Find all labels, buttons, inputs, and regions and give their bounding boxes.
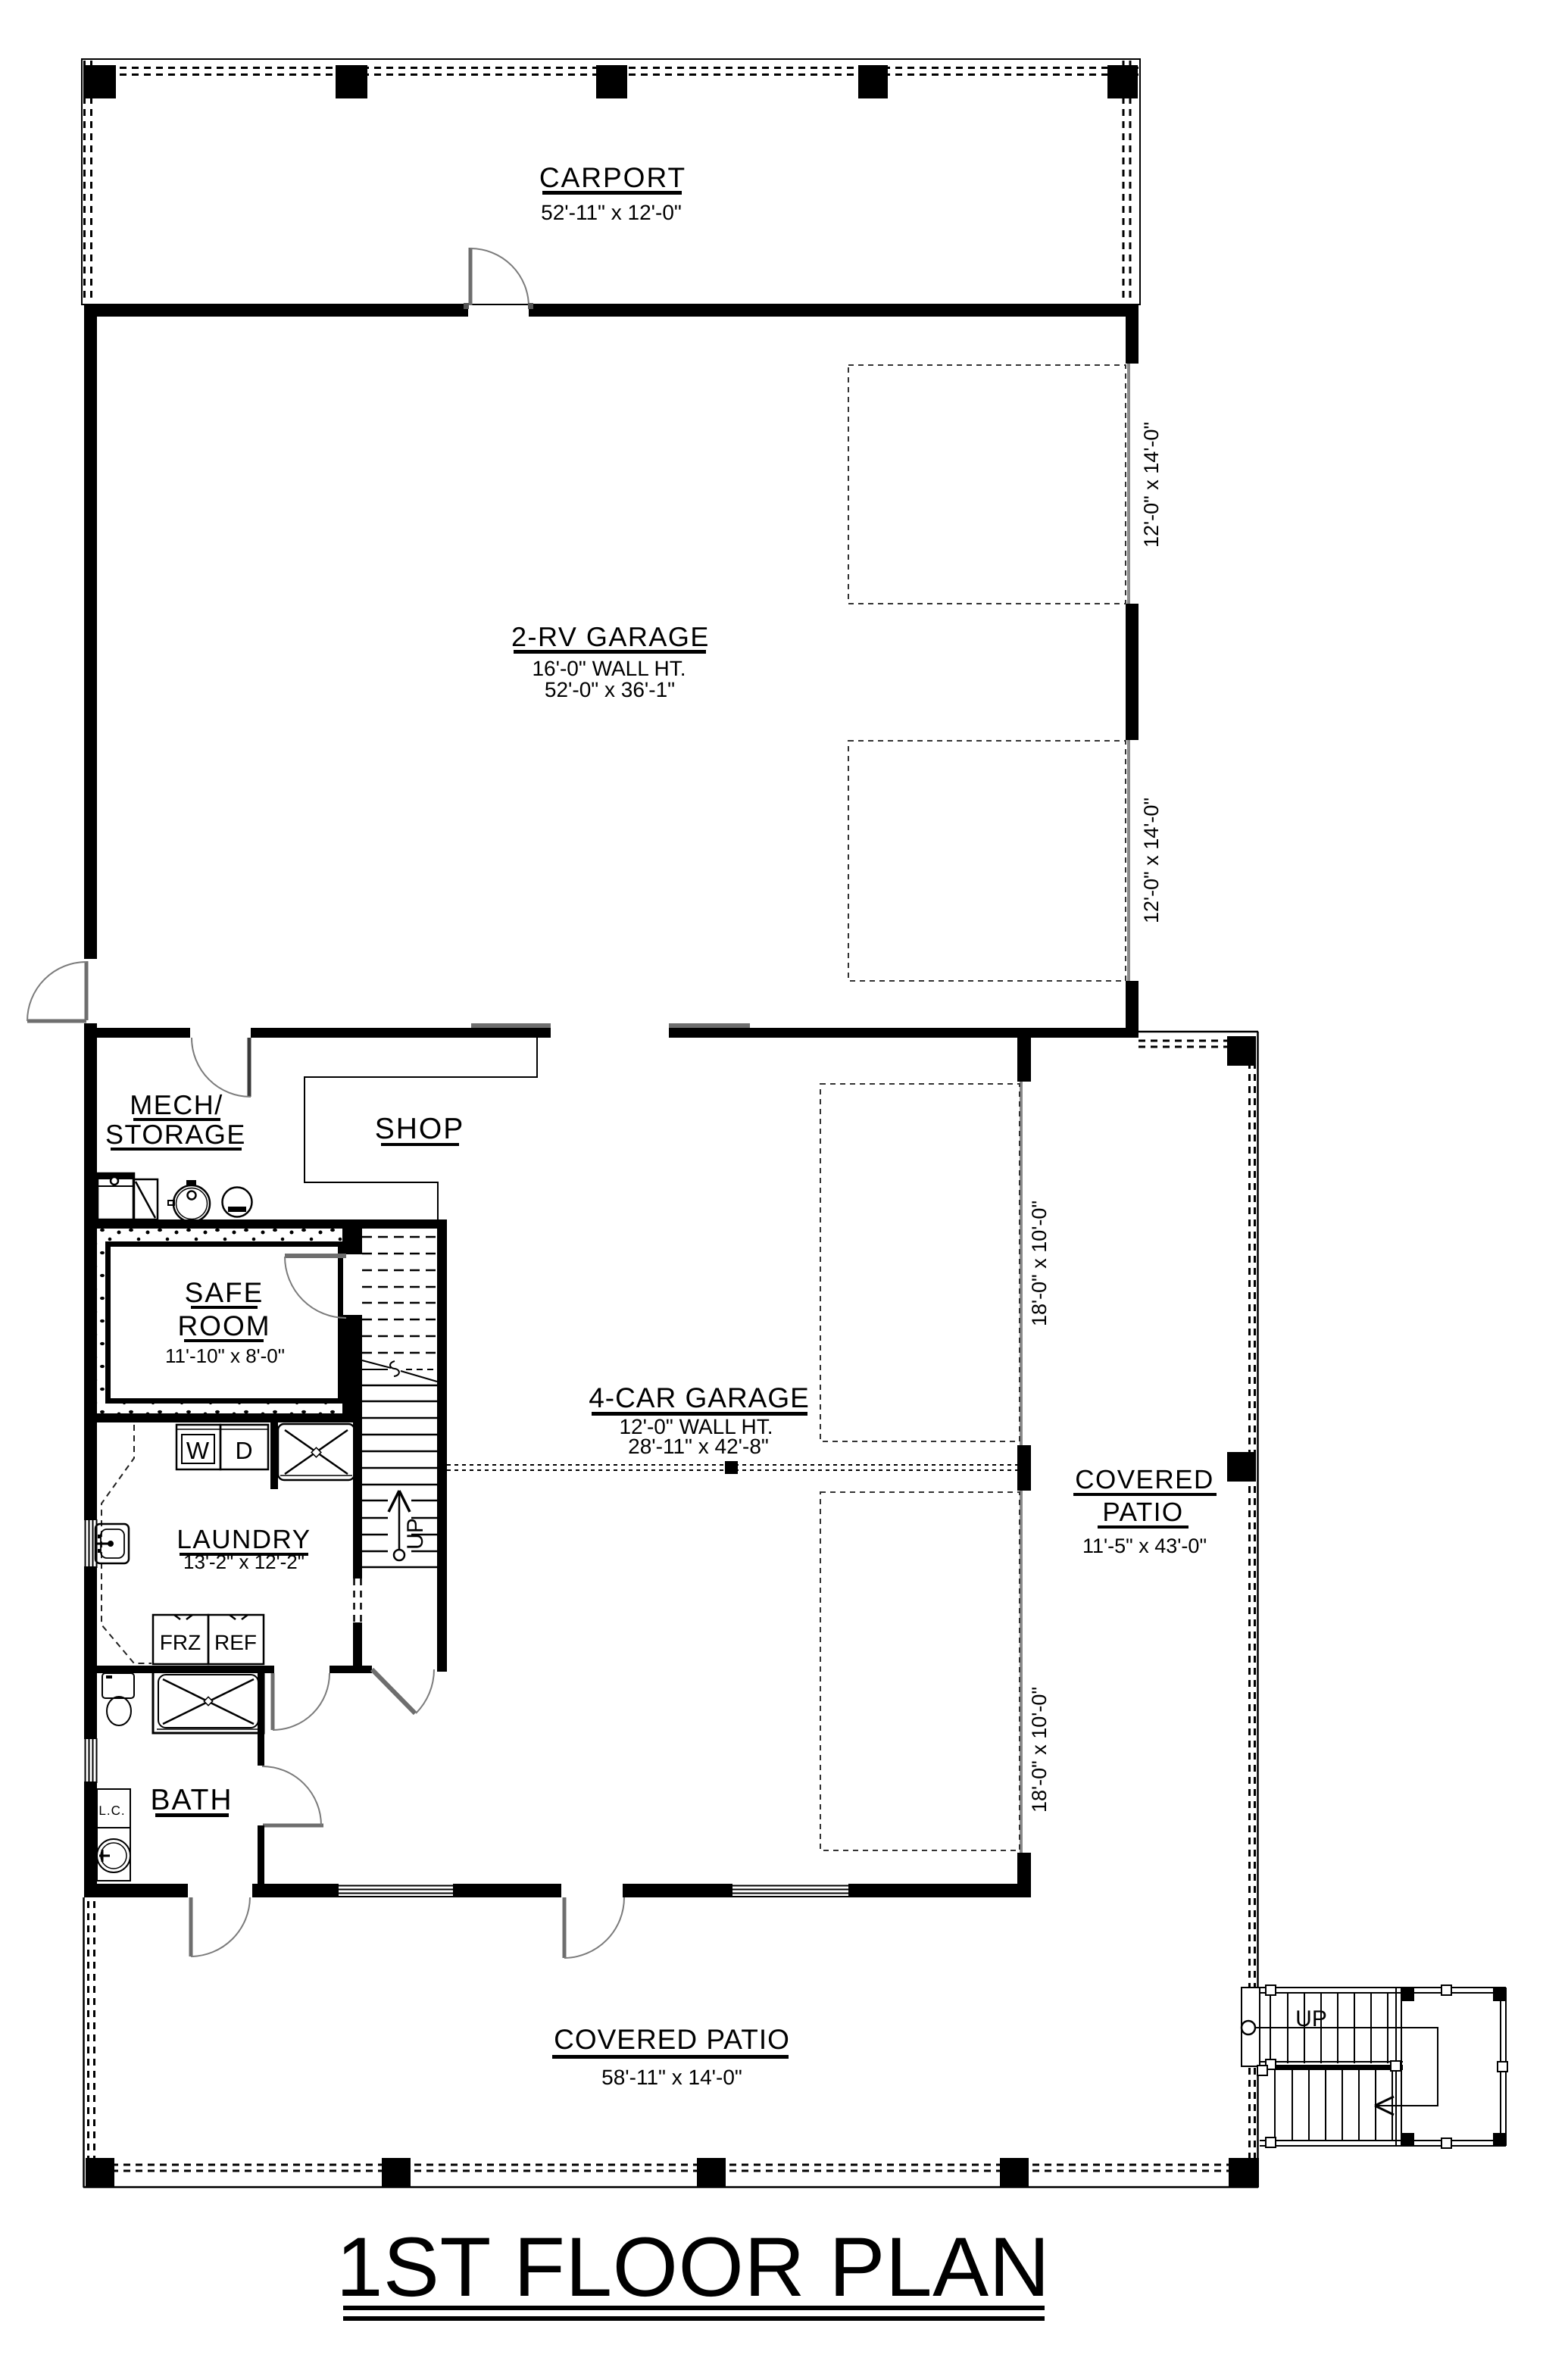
svg-text:BATH: BATH — [150, 1784, 233, 1816]
svg-text:13'-2" x 12'-2": 13'-2" x 12'-2" — [183, 1550, 305, 1573]
svg-text:4-CAR GARAGE: 4-CAR GARAGE — [589, 1382, 810, 1413]
svg-text:REF: REF — [214, 1631, 257, 1654]
svg-text:MECH/: MECH/ — [130, 1089, 223, 1120]
svg-text:FRZ: FRZ — [160, 1631, 201, 1654]
svg-text:UP: UP — [403, 1518, 428, 1550]
svg-text:PATIO: PATIO — [1102, 1497, 1183, 1527]
svg-text:SAFE: SAFE — [185, 1277, 264, 1308]
svg-text:W: W — [186, 1437, 210, 1464]
svg-text:CARPORT: CARPORT — [539, 162, 686, 193]
svg-text:SHOP: SHOP — [375, 1113, 465, 1145]
svg-text:L.C.: L.C. — [98, 1803, 125, 1818]
svg-text:COVERED PATIO: COVERED PATIO — [554, 2024, 790, 2055]
svg-text:11'-10" x 8'-0": 11'-10" x 8'-0" — [165, 1344, 285, 1367]
svg-text:11'-5" x 43'-0": 11'-5" x 43'-0" — [1082, 1535, 1207, 1557]
svg-text:16'-0" WALL HT.: 16'-0" WALL HT. — [532, 657, 686, 680]
svg-text:12'-0" x 14'-0": 12'-0" x 14'-0" — [1140, 422, 1163, 548]
svg-text:52'-0" x 36'-1": 52'-0" x 36'-1" — [545, 678, 675, 701]
svg-text:28'-11" x 42'-8": 28'-11" x 42'-8" — [628, 1435, 769, 1458]
svg-text:18'-0" x 10'-0": 18'-0" x 10'-0" — [1028, 1201, 1051, 1326]
svg-text:52'-11" x 12'-0": 52'-11" x 12'-0" — [541, 201, 682, 224]
svg-text:ROOM: ROOM — [177, 1310, 270, 1341]
svg-text:2-RV GARAGE: 2-RV GARAGE — [511, 621, 710, 652]
svg-text:D: D — [235, 1437, 252, 1464]
svg-text:UP: UP — [1295, 2006, 1327, 2031]
svg-text:STORAGE: STORAGE — [105, 1119, 246, 1150]
svg-text:12'-0" x 14'-0": 12'-0" x 14'-0" — [1140, 798, 1163, 923]
svg-text:18'-0" x 10'-0": 18'-0" x 10'-0" — [1028, 1687, 1051, 1813]
svg-text:COVERED: COVERED — [1075, 1465, 1214, 1494]
svg-text:58'-11" x 14'-0": 58'-11" x 14'-0" — [601, 2066, 742, 2089]
svg-text:1ST FLOOR PLAN: 1ST FLOOR PLAN — [336, 2220, 1051, 2314]
